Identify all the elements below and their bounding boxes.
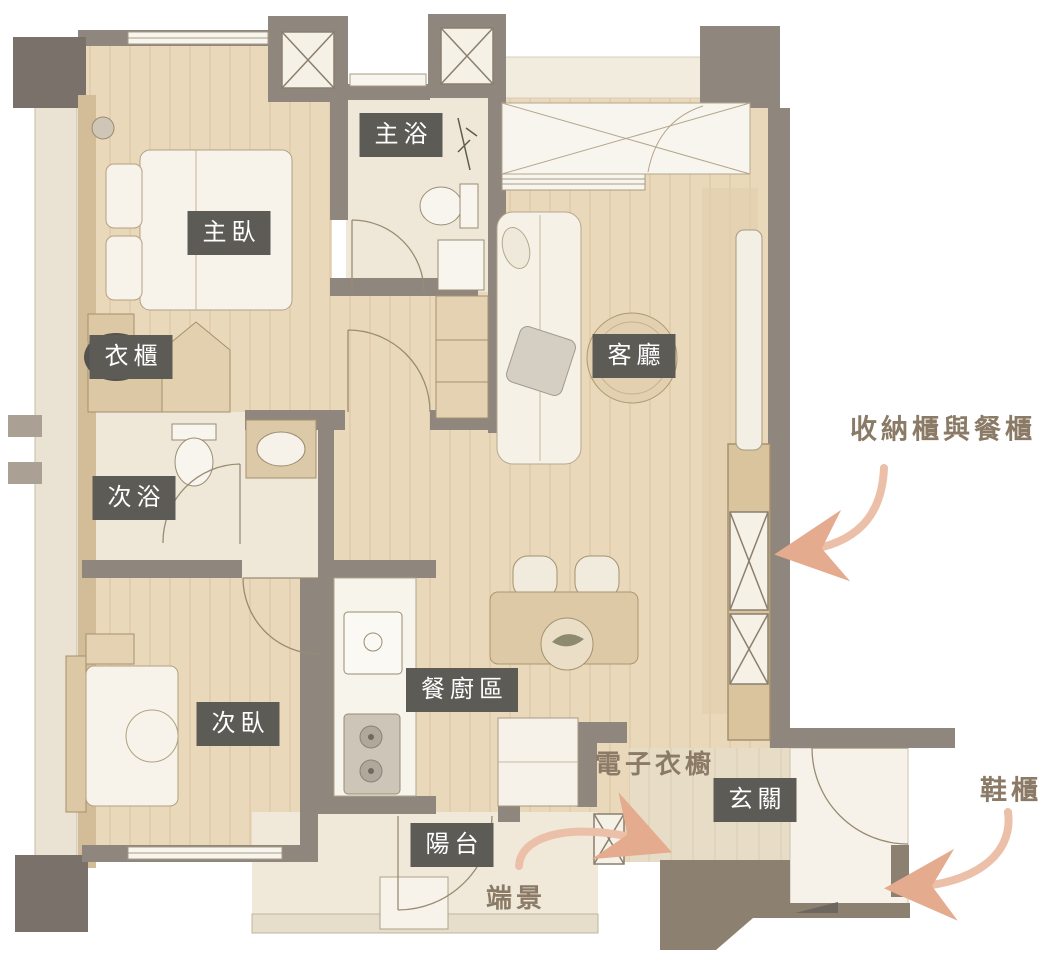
- room-label-balcony: 陽台: [411, 823, 494, 867]
- wall-kitchen-bottom: [318, 796, 436, 814]
- room-label-wardrobe: 衣櫃: [90, 335, 173, 379]
- end-view-cabinet: [380, 877, 448, 929]
- column-top-right: [700, 26, 780, 108]
- arrow-storage-cabinet: [802, 468, 884, 551]
- annotation-storage-dining-cabinet: 收納櫃與餐櫃: [850, 417, 1036, 444]
- room-label-living-room: 客廳: [593, 334, 676, 378]
- wall-masterbath-left: [330, 92, 348, 220]
- pillow-1: [106, 164, 142, 228]
- upper-ledge: [502, 57, 707, 98]
- room-label-dining-kitchen: 餐廚區: [406, 668, 518, 712]
- wall-secbedroom-right: [300, 578, 318, 862]
- wall-hall-small: [498, 805, 520, 822]
- basin-sec: [257, 432, 305, 466]
- left-stub-1: [8, 415, 42, 437]
- sec-bed-headboard: [66, 656, 86, 812]
- corner-block-top-left: [13, 37, 86, 108]
- sec-bed-shelf: [86, 634, 134, 664]
- corner-block-bottom-left: [15, 855, 88, 932]
- window-living: [502, 174, 645, 190]
- room-label-master-bedroom: 主臥: [188, 211, 271, 255]
- room-label-secondary-bedroom: 次臥: [197, 702, 280, 746]
- wall-right: [768, 108, 790, 732]
- room-label-master-bath: 主浴: [360, 113, 443, 157]
- window-bath-top: [350, 74, 426, 86]
- wall-secbath-right: [318, 412, 334, 578]
- tv-console: [736, 230, 762, 450]
- toilet-master: [420, 187, 462, 225]
- shoe-cabinet-unit: [891, 845, 909, 897]
- annotation-shoe-cabinet: 鞋櫃: [980, 778, 1041, 805]
- toilet-tank-master: [460, 184, 478, 228]
- bedside-lamp: [92, 117, 114, 139]
- wall-entry-top: [770, 728, 955, 748]
- entry-outer-floor: [790, 748, 908, 905]
- sec-bed-pillow: [126, 710, 178, 762]
- left-stub-2: [8, 462, 42, 484]
- floor-plan-canvas: 主浴 主臥 衣櫃 客廳 次浴 次臥 餐廚區 玄關 陽台 收納櫃與餐櫃 電子衣櫥 …: [0, 0, 1041, 964]
- kitchen-sink: [344, 612, 402, 674]
- pillow-2: [106, 236, 142, 300]
- vanity-master: [438, 240, 484, 290]
- annotation-end-view: 端景: [486, 885, 546, 911]
- arrow-shoe-cabinet: [912, 812, 1009, 887]
- room-label-secondary-bath: 次浴: [93, 476, 176, 520]
- wall-kitchen-top: [318, 560, 436, 578]
- wall-secbath-bottom: [82, 560, 242, 578]
- corridor-cabinet: [436, 296, 488, 418]
- wall-kitchen-left: [318, 578, 334, 814]
- annotation-electronic-wardrobe: 電子衣櫥: [595, 751, 715, 777]
- wall-hall-l1: [577, 722, 627, 743]
- room-label-entry: 玄關: [714, 778, 797, 822]
- toilet-sec: [175, 438, 213, 486]
